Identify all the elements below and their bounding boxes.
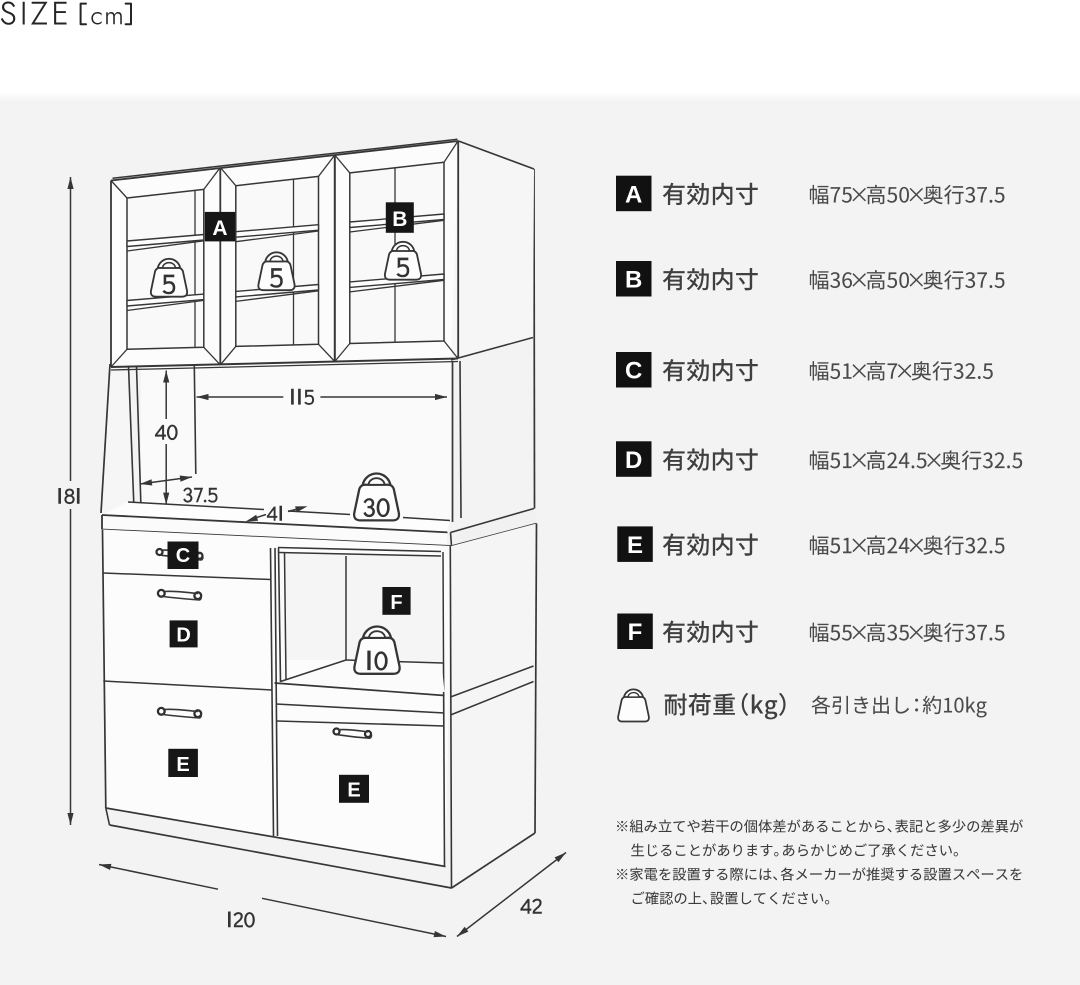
svg-text:C: C [625, 358, 642, 385]
svg-text:E: E [347, 780, 360, 802]
svg-text:B: B [392, 208, 407, 231]
svg-text:F: F [390, 592, 402, 614]
svg-text:A: A [212, 217, 227, 240]
svg-text:B: B [625, 267, 642, 294]
svg-text:E: E [176, 754, 189, 776]
svg-text:D: D [176, 625, 190, 647]
svg-text:A: A [625, 181, 642, 208]
svg-text:D: D [625, 447, 642, 474]
svg-text:C: C [176, 545, 190, 567]
svg-text:E: E [627, 532, 643, 559]
svg-text:F: F [628, 619, 643, 646]
